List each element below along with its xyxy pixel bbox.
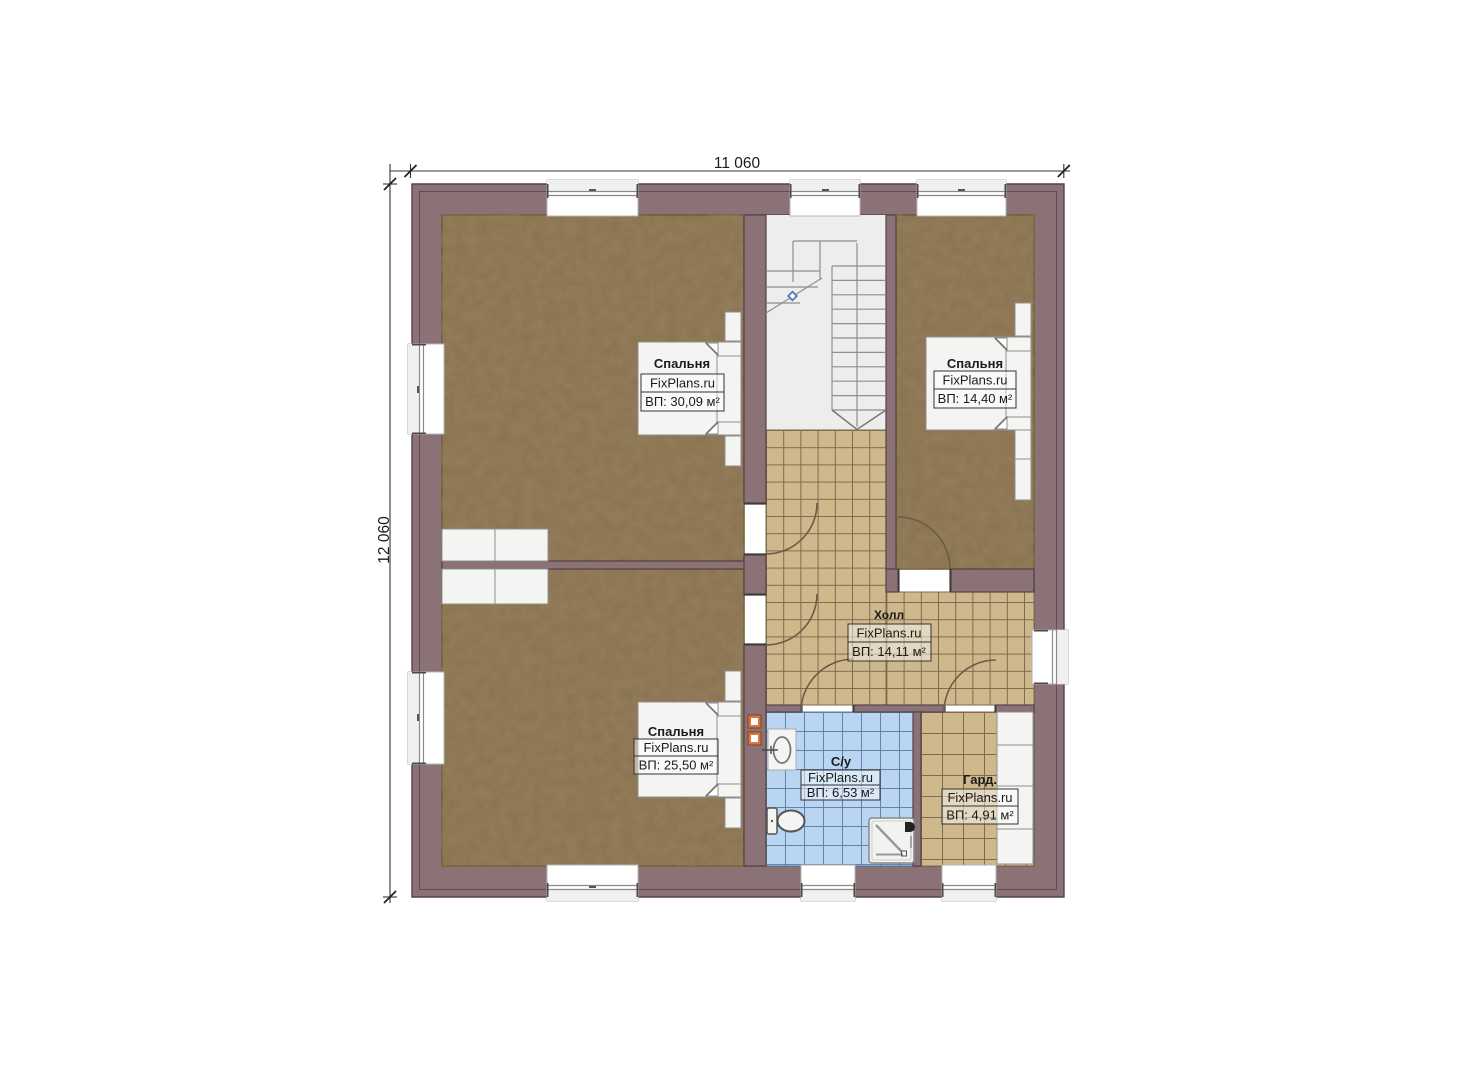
svg-text:Спальня: Спальня: [654, 356, 710, 371]
svg-text:Гард.: Гард.: [963, 772, 997, 787]
svg-text:FixPlans.ru: FixPlans.ru: [947, 790, 1012, 805]
svg-text:FixPlans.ru: FixPlans.ru: [942, 373, 1007, 388]
svg-text:Холл: Холл: [874, 608, 904, 622]
svg-text:ВП: 25,50 м²: ВП: 25,50 м²: [639, 758, 714, 773]
svg-text:ВП: 4,91 м²: ВП: 4,91 м²: [946, 808, 1014, 823]
svg-text:Спальня: Спальня: [648, 724, 704, 739]
svg-text:12 060: 12 060: [376, 516, 393, 564]
svg-text:ВП: 6,53 м²: ВП: 6,53 м²: [807, 785, 875, 800]
svg-text:ВП: 14,40 м²: ВП: 14,40 м²: [938, 391, 1013, 406]
svg-text:Спальня: Спальня: [947, 356, 1003, 371]
svg-text:11 060: 11 060: [714, 155, 761, 172]
svg-text:FixPlans.ru: FixPlans.ru: [856, 626, 921, 641]
svg-text:FixPlans.ru: FixPlans.ru: [650, 376, 715, 391]
svg-text:FixPlans.ru: FixPlans.ru: [643, 740, 708, 755]
svg-text:ВП: 14,11 м²: ВП: 14,11 м²: [852, 644, 926, 659]
svg-text:С/у: С/у: [831, 754, 852, 769]
svg-text:FixPlans.ru: FixPlans.ru: [808, 770, 873, 785]
svg-text:ВП: 30,09 м²: ВП: 30,09 м²: [645, 394, 720, 409]
